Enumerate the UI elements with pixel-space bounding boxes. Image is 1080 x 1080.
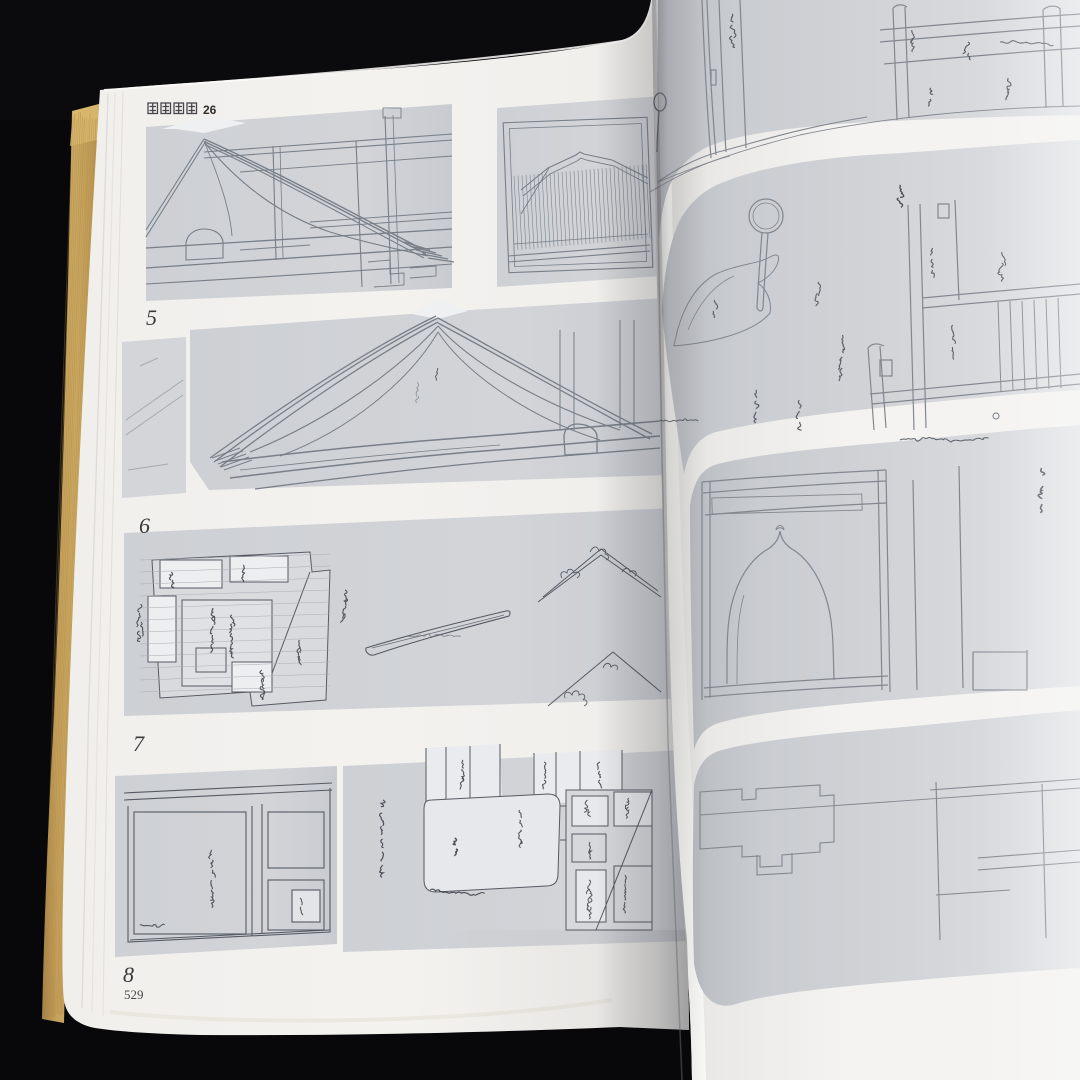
svg-text:529: 529	[124, 987, 144, 1002]
svg-text:7: 7	[133, 731, 145, 756]
svg-text:6: 6	[139, 513, 150, 538]
svg-text:26: 26	[203, 103, 217, 117]
svg-text:8: 8	[123, 962, 134, 987]
svg-text:5: 5	[146, 305, 157, 330]
